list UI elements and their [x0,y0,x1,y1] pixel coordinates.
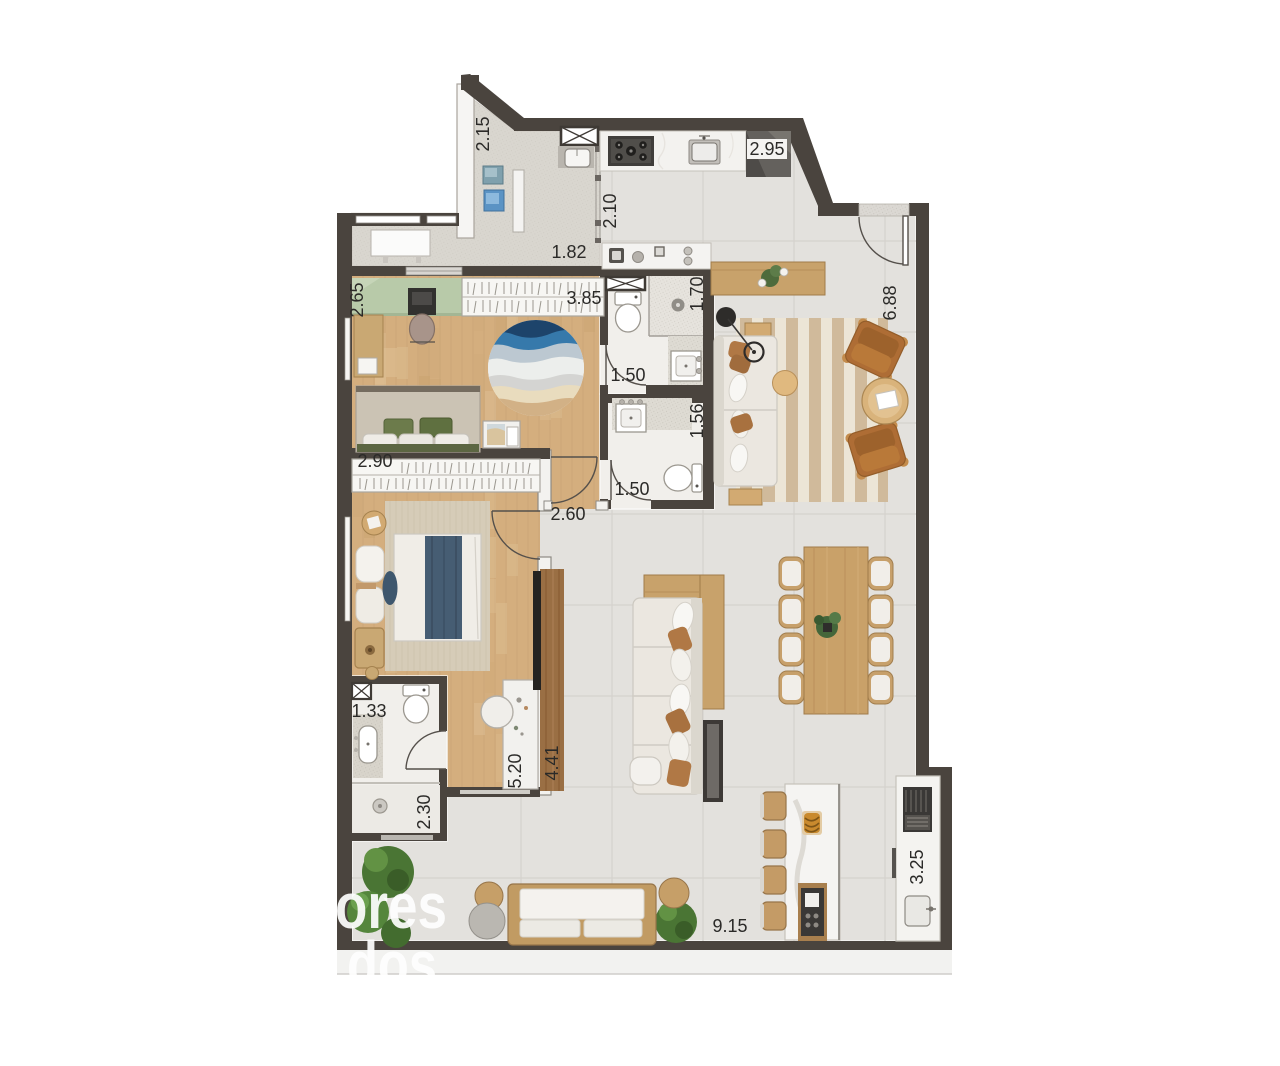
svg-text:1.33: 1.33 [351,701,386,721]
svg-text:2.95: 2.95 [749,139,784,159]
svg-text:1.50: 1.50 [610,365,645,385]
svg-text:1.56: 1.56 [687,403,707,438]
svg-text:3.85: 3.85 [566,288,601,308]
svg-text:2.15: 2.15 [473,116,493,151]
svg-text:2.65: 2.65 [347,282,367,317]
svg-text:dos: dos [347,928,437,1000]
svg-text:1.70: 1.70 [687,276,707,311]
svg-text:2.10: 2.10 [600,193,620,228]
svg-text:2.90: 2.90 [357,451,392,471]
svg-text:9.15: 9.15 [712,916,747,936]
svg-text:6.88: 6.88 [880,285,900,320]
svg-text:1.50: 1.50 [614,479,649,499]
svg-text:3.25: 3.25 [907,849,927,884]
svg-text:5.20: 5.20 [505,753,525,788]
svg-text:4.41: 4.41 [542,745,562,780]
svg-text:1.82: 1.82 [551,242,586,262]
svg-text:2.60: 2.60 [550,504,585,524]
svg-text:2.30: 2.30 [414,794,434,829]
